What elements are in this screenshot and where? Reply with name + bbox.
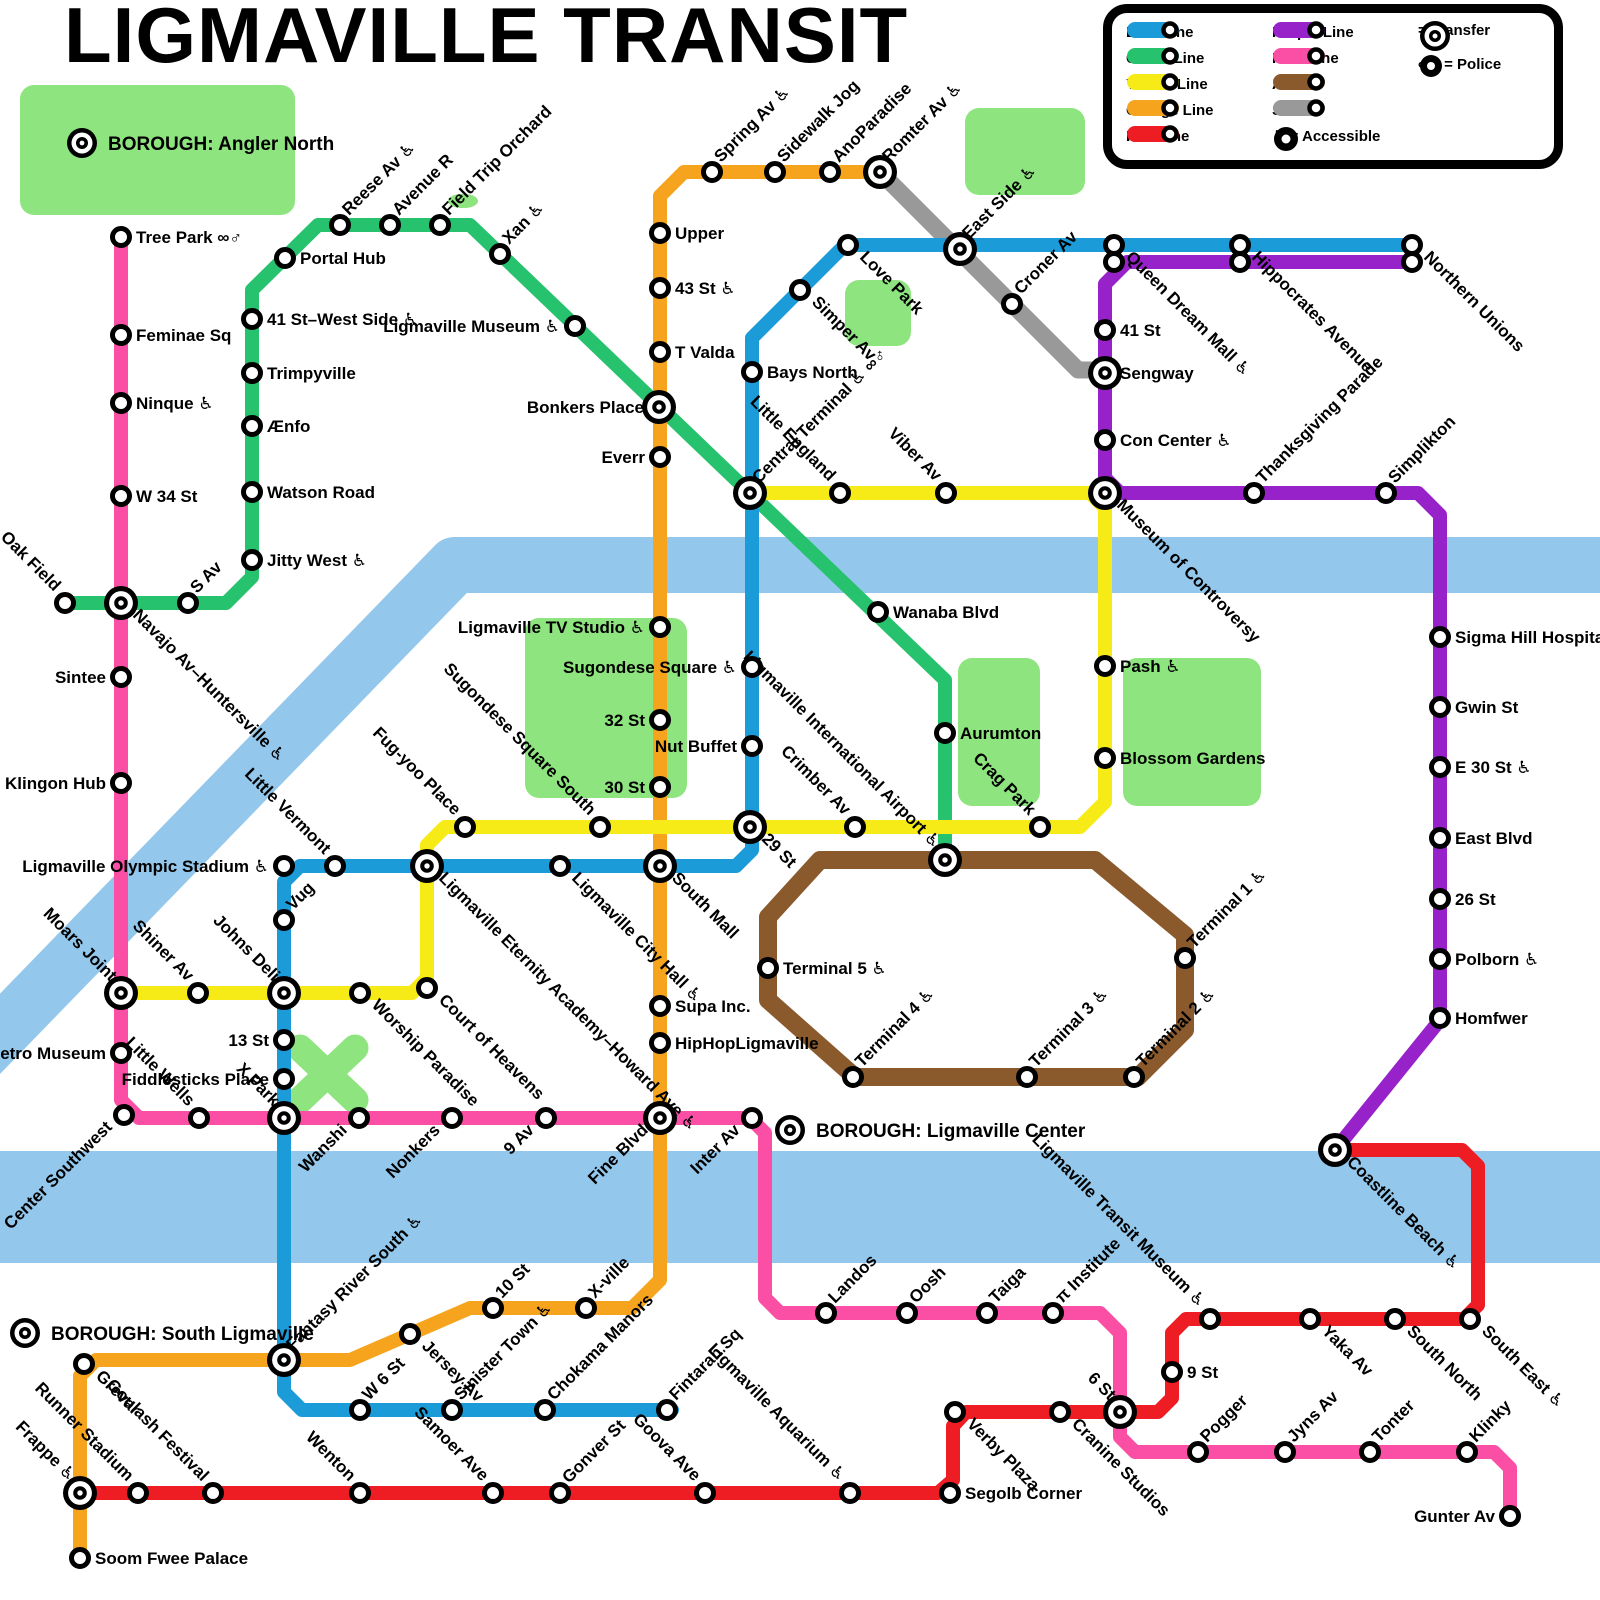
line-chip-icon [1126, 125, 1182, 143]
station-label: Soom Fwee Palace [95, 1549, 248, 1568]
station-label: Navajo Av–Huntersville ♿ [129, 605, 289, 765]
legend-item-yellow-line: Yellow Line [1126, 73, 1208, 95]
station-watson-road[interactable]: Watson Road [244, 483, 375, 502]
station-gwin-st[interactable]: Gwin St [1432, 698, 1519, 717]
station-label: S Av [186, 557, 226, 597]
station-label: Jitty West ♿ [267, 551, 367, 570]
station-label: Tree Park ∞♂ [136, 228, 242, 247]
station-pash[interactable]: Pash ♿ [1097, 657, 1181, 676]
line-chip-icon [1126, 47, 1182, 65]
station-oak-field[interactable]: Oak Field [0, 527, 73, 611]
station-court-of-heavens[interactable]: Court of Heavens [419, 980, 549, 1104]
station-con-center[interactable]: Con Center ♿ [1097, 431, 1232, 450]
legend: Blue Line Green Line Yellow Line Orange … [1103, 4, 1563, 169]
station-label: 26 St [1455, 890, 1496, 909]
station-tree-park[interactable]: Tree Park ∞♂ [113, 228, 243, 247]
station-soom-fwee-palace[interactable]: Soom Fwee Palace [72, 1549, 249, 1568]
station-label: Wanaba Blvd [893, 603, 999, 622]
station-thanksgiving-parade[interactable]: Thanksgiving Parade [1246, 352, 1387, 501]
station-label: Verby Plaza [963, 1414, 1044, 1495]
legend-transfer: = Transfer [1418, 19, 1490, 41]
station-jitty-west[interactable]: Jitty West ♿ [244, 551, 367, 570]
transfer-icon [1418, 19, 1452, 53]
station-label: Terminal 2 ♿ [1132, 984, 1219, 1071]
station-label: Polborn ♿ [1455, 950, 1539, 969]
station-label: 10 St [491, 1259, 533, 1301]
station-aurumton[interactable]: Aurumton [937, 724, 1042, 743]
legend-item-purple-line: Purple Line [1272, 21, 1354, 43]
station-label: Portal Hub [300, 249, 386, 268]
station-everr[interactable]: Everr [602, 448, 669, 467]
station-terminal-5[interactable]: Terminal 5 ♿ [760, 959, 887, 978]
borough-marker-borough-ligmaville-center: BOROUGH: Ligmaville Center [775, 1115, 1086, 1145]
station-label: South North [1403, 1321, 1486, 1404]
station-label: South East ♿ [1478, 1321, 1568, 1411]
legend-item-airrail: AirRail [1272, 73, 1320, 95]
station-northern-unions[interactable]: Northern Unions [1404, 237, 1529, 356]
station-label: Simplikton [1384, 412, 1459, 487]
station-label: Terminal 1 ♿ [1183, 865, 1270, 952]
station-label: Ligmaville Olympic Stadium ♿ [22, 857, 269, 876]
station-label: Gwin St [1455, 698, 1519, 717]
station-label: Pash ♿ [1120, 657, 1181, 676]
legend-item-green-line: Green Line [1126, 47, 1204, 69]
station-32-st[interactable]: 32 St [604, 711, 668, 730]
station-26-st[interactable]: 26 St [1432, 890, 1496, 909]
station-label: 41 St [1120, 321, 1161, 340]
park [1123, 658, 1261, 806]
station-t-valda[interactable]: T Valda [652, 343, 736, 362]
station-supa-inc[interactable]: Supa Inc. [652, 997, 751, 1016]
station-label: Jyns Av [1283, 1387, 1342, 1446]
station-label: Ligmaville TV Studio ♿ [458, 618, 645, 637]
station-label: 9 St [1187, 1363, 1219, 1382]
line-chip-icon [1272, 47, 1328, 65]
station-trimpyville[interactable]: Trimpyville [244, 364, 356, 383]
borough-label: BOROUGH: Angler North [108, 134, 334, 155]
station-label: Oak Field [0, 527, 65, 595]
station-label: Aurumton [960, 724, 1041, 743]
transit-map-page: LIGMAVILLE TRANSIT Croner AvTerminal 5 ♿… [0, 0, 1600, 1600]
legend-item-pink-line: Pink Line [1272, 47, 1339, 69]
line-chip-icon [1126, 21, 1182, 39]
station-label: Viber Av [885, 424, 946, 485]
station-label: South Mall [668, 868, 742, 942]
legend-accessible: ♿ = Accessible [1272, 125, 1380, 147]
station-ligmaville-olympic-stadium[interactable]: Ligmaville Olympic Stadium ♿ [22, 857, 292, 876]
station-label: Nut Buffet [655, 737, 737, 756]
station-label: Johns Deli [209, 911, 283, 985]
station-label: Croner Av [1010, 227, 1081, 298]
station-label: Con Center ♿ [1120, 431, 1232, 450]
station-label: Field Trip Orchard [438, 102, 555, 219]
station-label: 13 St [228, 1031, 269, 1050]
station-terminal-2[interactable]: Terminal 2 ♿ [1126, 984, 1220, 1085]
station-13-st[interactable]: 13 St [228, 1031, 292, 1050]
station-nut-buffet[interactable]: Nut Buffet [655, 737, 761, 756]
legend-item-red-line: Red Line [1126, 125, 1189, 147]
station-label: Xan ♿ [498, 198, 548, 248]
station-ligmaville-museum[interactable]: Ligmaville Museum ♿ [383, 317, 583, 336]
station-6-st[interactable]: 6 St [1084, 1368, 1137, 1429]
station-portal-hub[interactable]: Portal Hub [277, 249, 386, 268]
station-label: Ligmaville Museum ♿ [383, 317, 560, 336]
station-feminae-sq[interactable]: Feminae Sq [113, 326, 232, 345]
station-label: Klingon Hub [5, 774, 106, 793]
station-9-st[interactable]: 9 St [1164, 1363, 1219, 1382]
station-label: 29 St [758, 829, 800, 871]
station-label: W 34 St [136, 487, 198, 506]
station-gunter-av[interactable]: Gunter Av [1414, 1507, 1518, 1526]
station-label: Fug-yoo Place [369, 723, 465, 819]
station-goulash-festival[interactable]: Goulash Festival [103, 1375, 222, 1501]
station-label: Sengway [1120, 364, 1194, 383]
station-label: Ninque ♿ [136, 394, 214, 413]
station-east-blvd[interactable]: East Blvd [1432, 829, 1533, 848]
station-label: Feminae Sq [136, 326, 231, 345]
station-label: Sintee [55, 668, 106, 687]
borough-marker-borough-south-ligmaville: BOROUGH: South Ligmaville [10, 1318, 314, 1348]
station-43-st[interactable]: 43 St ♿ [652, 279, 736, 298]
station-label: Terminal 4 ♿ [851, 984, 938, 1071]
station-nfo[interactable]: Ænfo [244, 417, 311, 436]
station-label: Yaka Av [1318, 1321, 1377, 1380]
station-sintee[interactable]: Sintee [55, 668, 130, 687]
accessible-icon [1272, 125, 1300, 153]
station-ligmaville-tv-studio[interactable]: Ligmaville TV Studio ♿ [458, 618, 669, 637]
station-label: Tonter [1368, 1396, 1418, 1446]
station-ligmaville-aquarium[interactable]: Ligmaville Aquarium ♿ [704, 1339, 858, 1501]
station-sengway[interactable]: Sengway [1088, 356, 1194, 390]
station-e-30-st[interactable]: E 30 St ♿ [1432, 758, 1532, 777]
legend-police: ∞♂ = Police [1418, 53, 1501, 75]
station-label: Blossom Gardens [1120, 749, 1266, 768]
station-fug-yoo-place[interactable]: Fug-yoo Place [369, 723, 473, 835]
station-label: Pogger [1196, 1391, 1251, 1446]
station-41-st[interactable]: 41 St [1097, 321, 1161, 340]
station-label: Trimpyville [267, 364, 356, 383]
station-label: Gunter Av [1414, 1507, 1495, 1526]
station-label: HipHopLigmaville [675, 1034, 819, 1053]
legend-item-shuttle: Shuttle [1272, 99, 1323, 121]
line-chip-icon [1272, 73, 1328, 91]
line-chip-icon [1272, 21, 1328, 39]
station-label: Watson Road [267, 483, 375, 502]
borough-label: BOROUGH: South Ligmaville [51, 1324, 314, 1345]
station-w-34-st[interactable]: W 34 St [113, 487, 198, 506]
station-label: Thanksgiving Parade [1252, 352, 1386, 486]
transit-map: Croner AvTerminal 5 ♿Terminal 4 ♿Termina… [0, 0, 1600, 1600]
station-ninque[interactable]: Ninque ♿ [113, 394, 214, 413]
station-label: Taiga [985, 1263, 1029, 1307]
station-label: Terminal 3 ♿ [1025, 984, 1112, 1071]
station-label: Ligmaville Aquarium ♿ [704, 1339, 849, 1484]
station-klingon-hub[interactable]: Klingon Hub [5, 774, 130, 793]
station-label: 30 St [604, 778, 645, 797]
station-label: W 6 St [358, 1353, 408, 1403]
station-homfwer[interactable]: Homfwer [1432, 1009, 1529, 1028]
station-upper[interactable]: Upper [652, 224, 725, 243]
station-worship-paradise[interactable]: Worship Paradise [352, 985, 483, 1111]
station-sigma-hill-hospital[interactable]: Sigma Hill Hospital ♿ [1432, 628, 1600, 647]
line-chip-icon [1126, 99, 1182, 117]
station-romter-av[interactable]: Romter Av ♿ [863, 78, 966, 189]
station-label: 43 St ♿ [675, 279, 736, 298]
station-label: Everr [602, 448, 646, 467]
station-hiphopligmaville[interactable]: HipHopLigmaville [652, 1034, 819, 1053]
station-label: Oosh [905, 1263, 949, 1307]
station-30-st[interactable]: 30 St [604, 778, 668, 797]
station-label: Northern Unions [1420, 247, 1528, 355]
station-segolb-corner[interactable]: Segolb Corner [942, 1484, 1083, 1503]
station-label: Shiner Av [129, 916, 198, 985]
station-metro-museum[interactable]: Metro Museum [0, 1044, 130, 1063]
station-label: Gonver St [558, 1416, 629, 1487]
station-label: Sugondese Square ♿ [563, 658, 737, 677]
station-label: Upper [675, 224, 725, 243]
legend-item-blue-line: Blue Line [1126, 21, 1194, 43]
station-label: East Blvd [1455, 829, 1532, 848]
station-polborn[interactable]: Polborn ♿ [1432, 950, 1540, 969]
station-label: Wenton [302, 1428, 359, 1485]
station-xan[interactable]: Xan ♿ [492, 198, 549, 262]
station-bays-north[interactable]: Bays North [744, 363, 858, 382]
legend-item-orange-line: Orange Line [1126, 99, 1214, 121]
station-sugondese-square[interactable]: Sugondese Square ♿ [563, 658, 760, 677]
station-terminal-1[interactable]: Terminal 1 ♿ [1177, 865, 1271, 966]
line-chip-icon [1272, 99, 1328, 117]
station-bonkers-place[interactable]: Bonkers Place [527, 390, 676, 424]
station-label: 32 St [604, 711, 645, 730]
station-label: Segolb Corner [965, 1484, 1083, 1503]
station-label: Ænfo [267, 417, 310, 436]
police-icon [1418, 53, 1444, 79]
station-label: T Valda [675, 343, 735, 362]
station-label: E 30 St ♿ [1455, 758, 1532, 777]
station-label: Terminal 5 ♿ [783, 959, 887, 978]
line-chip-icon [1126, 73, 1182, 91]
station-label: Bonkers Place [527, 398, 644, 417]
borough-label: BOROUGH: Ligmaville Center [816, 1121, 1086, 1142]
station-label: Sigma Hill Hospital ♿ [1455, 628, 1600, 647]
station-label: Homfwer [1455, 1009, 1528, 1028]
station-blossom-gardens[interactable]: Blossom Gardens [1097, 749, 1266, 768]
station-label: Metro Museum [0, 1044, 106, 1063]
